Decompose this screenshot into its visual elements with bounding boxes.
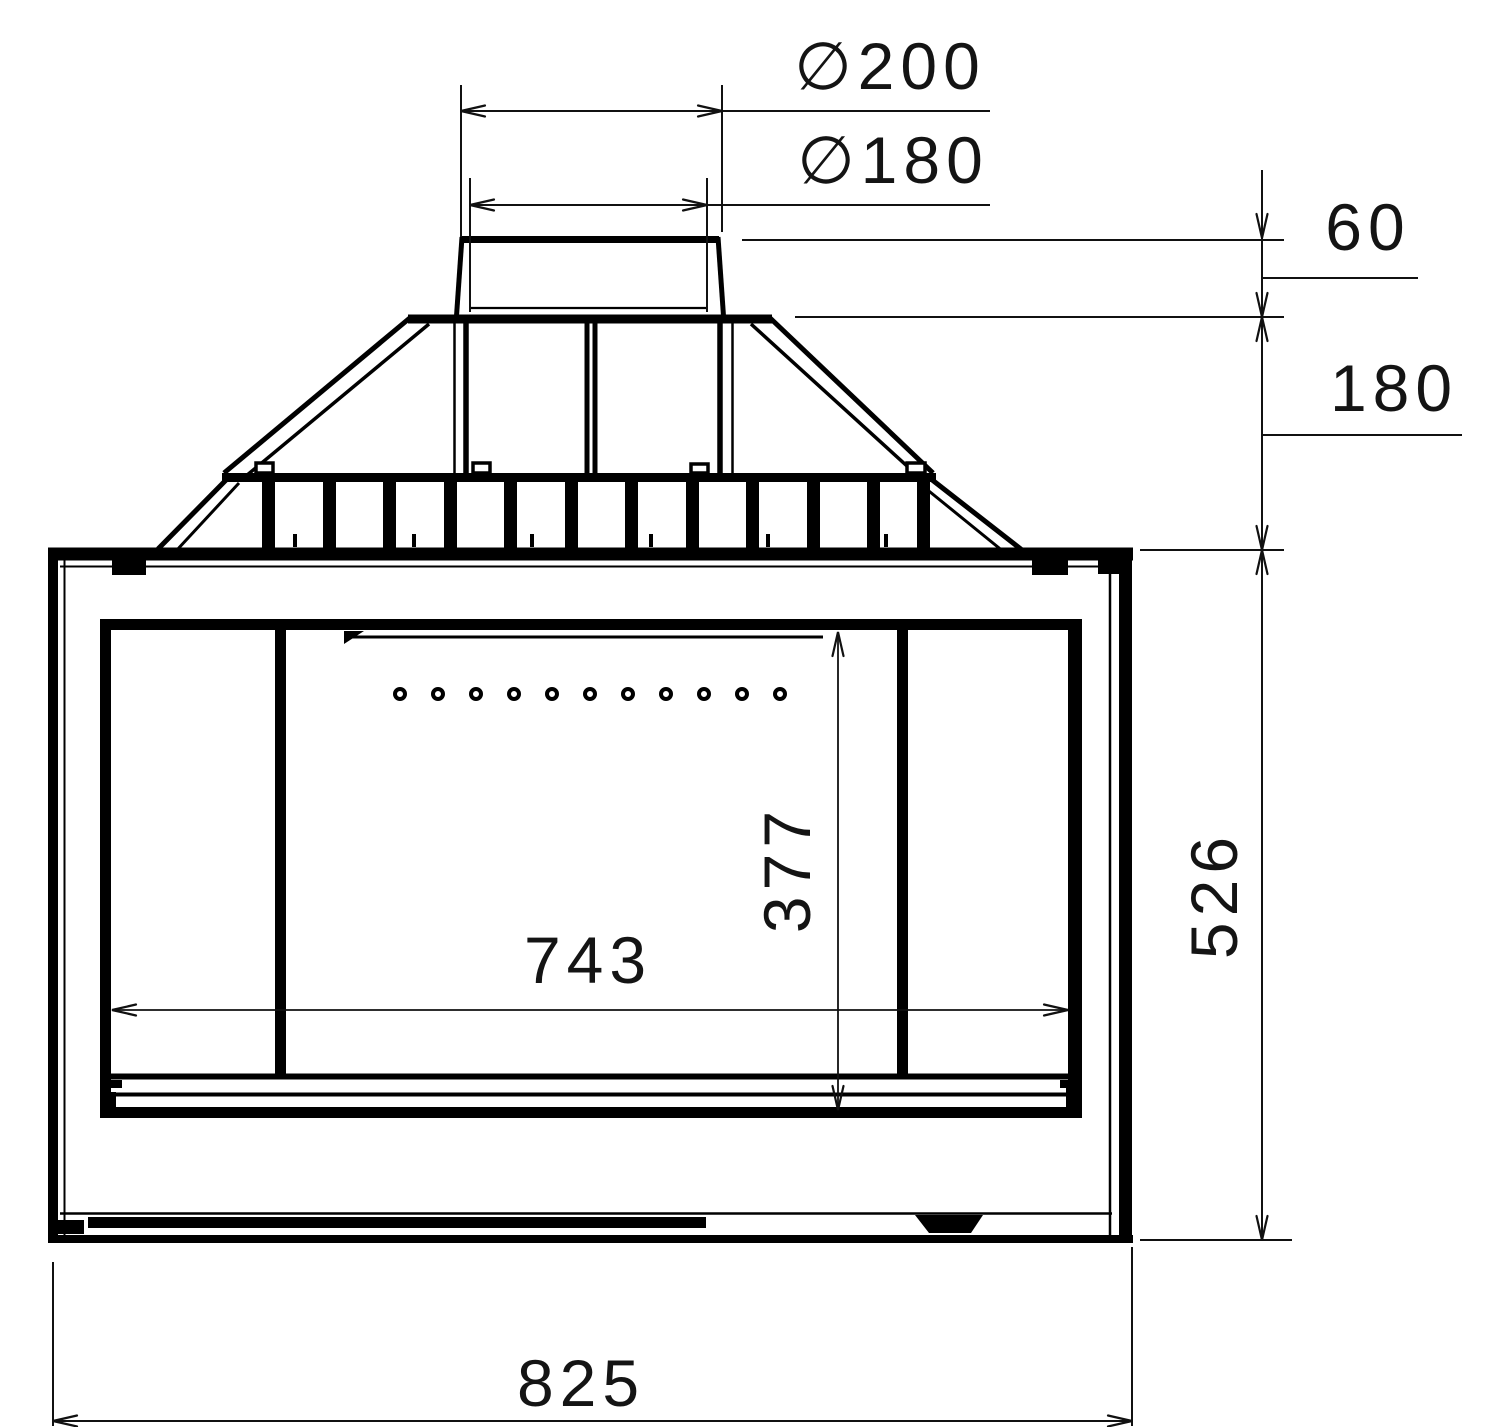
grille-tick (884, 534, 888, 547)
grille-slat (383, 482, 396, 548)
top-plate-latch-right (1032, 560, 1068, 575)
dim-label-body-height: 526 (1177, 831, 1251, 959)
bottom-latch-block (915, 1215, 983, 1233)
grille-tick (766, 534, 770, 547)
fireplace-technical-drawing: ∅200 ∅180 60 180 5 (0, 0, 1500, 1427)
grille-slat (867, 482, 880, 548)
grille-tick (293, 534, 297, 547)
air-hole (395, 689, 405, 699)
glass-divider-right (897, 630, 908, 1075)
dim-overall-width: 825 (53, 1247, 1132, 1427)
grille-slat (625, 482, 638, 548)
mounting-tab (691, 464, 708, 473)
dim-label-opening-height: 377 (750, 805, 824, 933)
dimension-annotations: ∅200 ∅180 60 180 5 (53, 29, 1462, 1427)
drawing-canvas: ∅200 ∅180 60 180 5 (0, 0, 1500, 1427)
ashpan-front-band (88, 1217, 706, 1228)
grille-slat (807, 482, 820, 548)
air-hole (547, 689, 557, 699)
air-hole (471, 689, 481, 699)
dim-opening-width: 743 (112, 923, 1068, 1016)
dim-label-hood-height: 180 (1330, 351, 1458, 425)
grille-slat (686, 482, 699, 548)
grille-tick (412, 534, 416, 547)
grille-tick (649, 534, 653, 547)
mounting-tab (473, 463, 490, 473)
grille-slat (565, 482, 578, 548)
rail-step-right (1060, 1080, 1075, 1088)
hood-left-slope-inner (246, 324, 429, 476)
dim-flue-inner-diameter: ∅180 (470, 123, 990, 312)
smoke-hood (158, 317, 1022, 552)
air-hole (585, 689, 595, 699)
grille-slat (444, 482, 457, 548)
hood-left-skirt-outer (158, 479, 227, 549)
air-hole (623, 689, 633, 699)
dim-label-overall-width: 825 (517, 1346, 645, 1420)
hood-right-slope-outer (769, 317, 933, 473)
air-hole (699, 689, 709, 699)
rail-step-left (107, 1092, 116, 1108)
air-hole (775, 689, 785, 699)
grille-slat (323, 482, 336, 548)
air-hole (433, 689, 443, 699)
air-hole-row (395, 689, 785, 699)
flue-collar-right-side (718, 237, 724, 316)
air-hole (737, 689, 747, 699)
top-plate-latch-left (112, 560, 146, 575)
dim-label-flue-inner: ∅180 (797, 123, 989, 197)
door-frame (100, 619, 1082, 1117)
firebox-body (48, 548, 1133, 1242)
grille-tick (530, 534, 534, 547)
hood-right-skirt-outer (931, 479, 1022, 550)
grille-slat (262, 482, 275, 548)
dim-label-opening-width: 743 (524, 923, 652, 997)
hood-left-slope-outer (224, 317, 411, 473)
rail-step-left (107, 1080, 122, 1088)
grille-slat (746, 482, 759, 548)
grille-slat (504, 482, 517, 548)
bottom-bracket-left (57, 1220, 84, 1234)
flue-collar (457, 237, 724, 316)
mounting-tab (256, 463, 273, 473)
mounting-tab (907, 463, 925, 473)
hood-right-slope-inner (751, 324, 918, 476)
dim-label-flue-outer: ∅200 (794, 29, 986, 103)
hood-left-skirt-inner (176, 483, 239, 551)
air-hole (661, 689, 671, 699)
dim-label-collar-height: 60 (1325, 190, 1410, 264)
grille-slat (917, 482, 930, 548)
glass-divider-left (275, 630, 286, 1075)
convection-grille (262, 482, 930, 548)
hood-right-skirt-inner (919, 483, 1004, 552)
air-hole (509, 689, 519, 699)
flue-collar-left-side (457, 237, 463, 316)
dim-opening-height: 377 (750, 632, 844, 1110)
rail-step-right (1066, 1088, 1075, 1108)
